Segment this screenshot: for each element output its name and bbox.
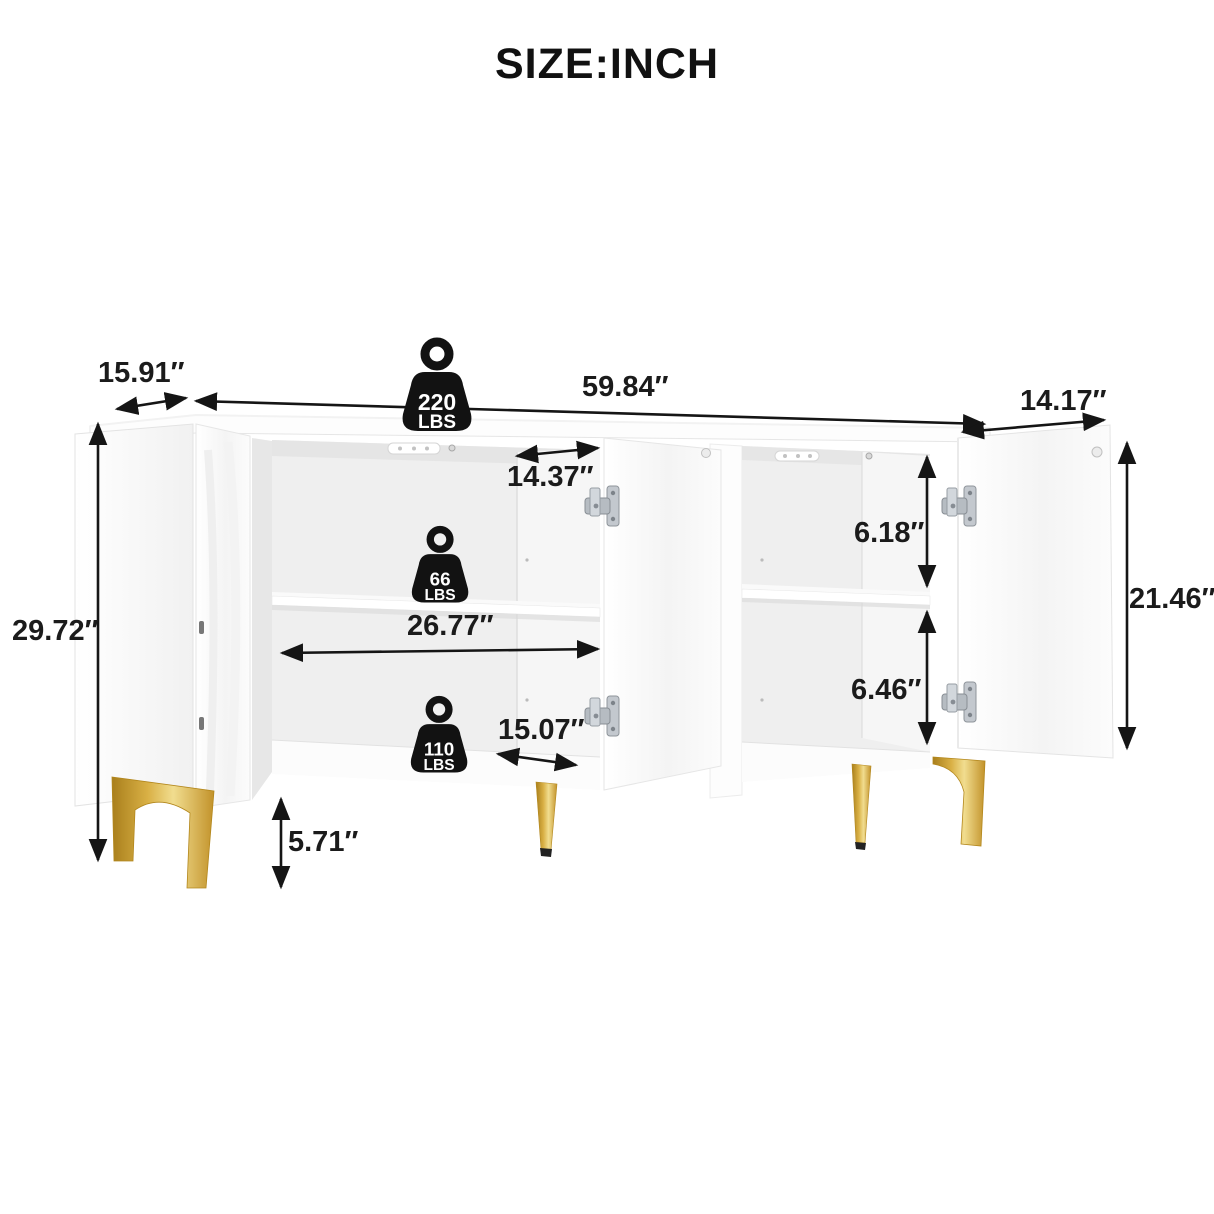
sideboard-illustration: 220 LBS 66 LBS 110 LBS bbox=[0, 0, 1214, 1214]
middle-open-door bbox=[604, 438, 721, 790]
dim-bottom-opening-width: 15.07″ bbox=[498, 714, 584, 747]
size-diagram: SIZE:INCH bbox=[0, 0, 1214, 1214]
weight-shelf-value: 66 bbox=[430, 568, 451, 589]
dim-interior-width: 26.77″ bbox=[407, 610, 493, 643]
weight-bottom-unit: LBS bbox=[423, 757, 454, 774]
leg-foot bbox=[855, 842, 866, 850]
weight-shelf-unit: LBS bbox=[424, 587, 455, 604]
arrow-top-depth bbox=[117, 398, 186, 409]
weight-badge-top: 220 LBS bbox=[403, 342, 472, 433]
screw-icon bbox=[866, 453, 872, 459]
right-compartment bbox=[742, 446, 930, 782]
dim-overall-width: 59.84″ bbox=[582, 371, 668, 404]
dim-right-door-width: 14.17″ bbox=[1020, 385, 1106, 418]
weight-top-unit: LBS bbox=[418, 412, 456, 433]
right-straight-leg bbox=[852, 764, 871, 843]
dim-leg-height: 5.71″ bbox=[288, 826, 358, 859]
dim-top-depth: 15.91″ bbox=[98, 357, 184, 390]
hinge-pin-icon bbox=[199, 717, 204, 730]
dim-door-height: 21.46″ bbox=[1129, 583, 1214, 616]
l-shaped-leg bbox=[933, 757, 985, 846]
middle-leg bbox=[536, 782, 557, 850]
dim-upper-compartment: 6.18″ bbox=[854, 517, 924, 550]
arch-leg bbox=[112, 777, 214, 888]
dim-lower-compartment: 6.46″ bbox=[851, 674, 921, 707]
screw-cap-icon bbox=[702, 449, 711, 458]
weight-bottom-value: 110 bbox=[424, 738, 454, 759]
left-open-door bbox=[196, 424, 272, 808]
right-open-door bbox=[958, 425, 1113, 758]
dim-overall-height: 29.72″ bbox=[12, 615, 98, 648]
leg-foot bbox=[540, 848, 552, 857]
dim-left-door-width: 14.37″ bbox=[507, 461, 593, 494]
hinge-pin-icon bbox=[199, 621, 204, 634]
screw-cap-icon bbox=[1092, 447, 1102, 457]
screw-icon bbox=[449, 445, 455, 451]
